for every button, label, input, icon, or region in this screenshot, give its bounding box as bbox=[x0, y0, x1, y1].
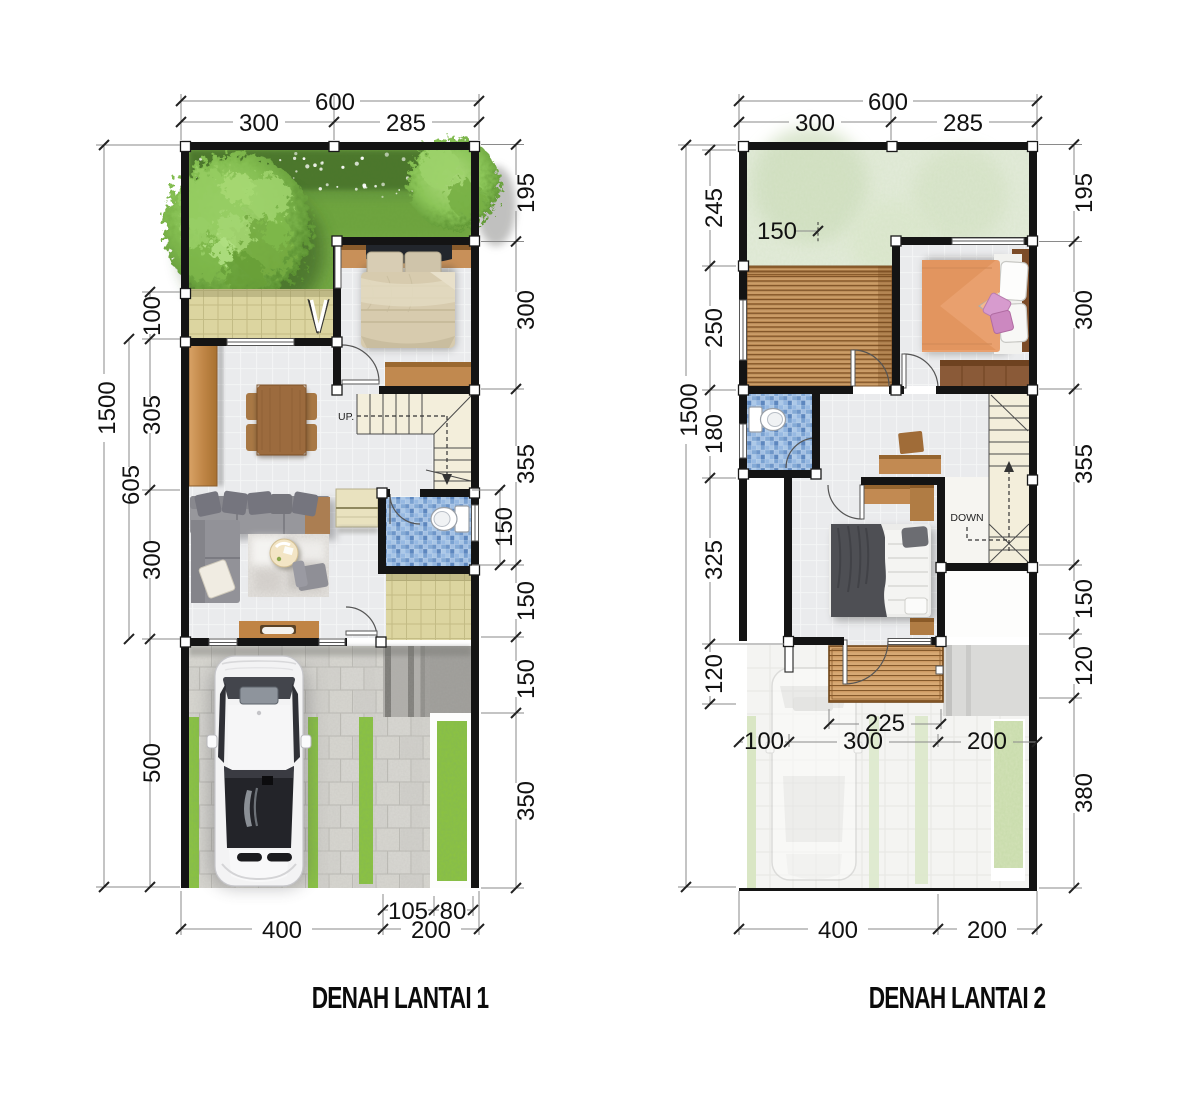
svg-text:380: 380 bbox=[1071, 773, 1098, 813]
svg-text:120: 120 bbox=[1071, 646, 1098, 686]
svg-text:100: 100 bbox=[744, 728, 784, 755]
svg-text:250: 250 bbox=[701, 308, 728, 348]
svg-text:500: 500 bbox=[139, 743, 166, 783]
svg-text:600: 600 bbox=[315, 89, 355, 116]
svg-text:150: 150 bbox=[513, 581, 540, 621]
svg-text:605: 605 bbox=[118, 465, 145, 505]
svg-text:355: 355 bbox=[513, 444, 540, 484]
svg-text:285: 285 bbox=[386, 110, 426, 137]
svg-text:355: 355 bbox=[1071, 444, 1098, 484]
svg-text:305: 305 bbox=[139, 395, 166, 435]
svg-text:400: 400 bbox=[262, 917, 302, 944]
svg-text:300: 300 bbox=[843, 728, 883, 755]
svg-text:325: 325 bbox=[701, 540, 728, 580]
svg-text:150: 150 bbox=[757, 218, 797, 245]
svg-text:120: 120 bbox=[701, 654, 728, 694]
svg-text:195: 195 bbox=[513, 173, 540, 213]
svg-text:300: 300 bbox=[239, 110, 279, 137]
svg-text:150: 150 bbox=[513, 659, 540, 699]
svg-text:300: 300 bbox=[513, 290, 540, 330]
svg-text:180: 180 bbox=[701, 414, 728, 454]
svg-text:150: 150 bbox=[1071, 579, 1098, 619]
svg-text:350: 350 bbox=[513, 781, 540, 821]
svg-text:600: 600 bbox=[868, 89, 908, 116]
svg-text:UP.: UP. bbox=[338, 411, 354, 423]
svg-text:300: 300 bbox=[1071, 290, 1098, 330]
svg-text:105: 105 bbox=[388, 898, 428, 925]
svg-text:DENAH LANTAI 1: DENAH LANTAI 1 bbox=[312, 979, 489, 1014]
svg-text:150: 150 bbox=[491, 507, 518, 547]
svg-text:DENAH LANTAI 2: DENAH LANTAI 2 bbox=[869, 979, 1046, 1014]
svg-text:300: 300 bbox=[139, 540, 166, 580]
svg-text:400: 400 bbox=[818, 917, 858, 944]
svg-text:195: 195 bbox=[1071, 173, 1098, 213]
svg-text:245: 245 bbox=[701, 188, 728, 228]
svg-text:1500: 1500 bbox=[676, 383, 703, 436]
svg-text:200: 200 bbox=[967, 728, 1007, 755]
svg-text:285: 285 bbox=[943, 110, 983, 137]
svg-text:1500: 1500 bbox=[94, 381, 121, 434]
svg-text:DOWN: DOWN bbox=[950, 512, 983, 524]
svg-text:200: 200 bbox=[967, 917, 1007, 944]
svg-text:80: 80 bbox=[440, 898, 467, 925]
svg-text:100: 100 bbox=[139, 296, 166, 336]
svg-text:300: 300 bbox=[795, 110, 835, 137]
